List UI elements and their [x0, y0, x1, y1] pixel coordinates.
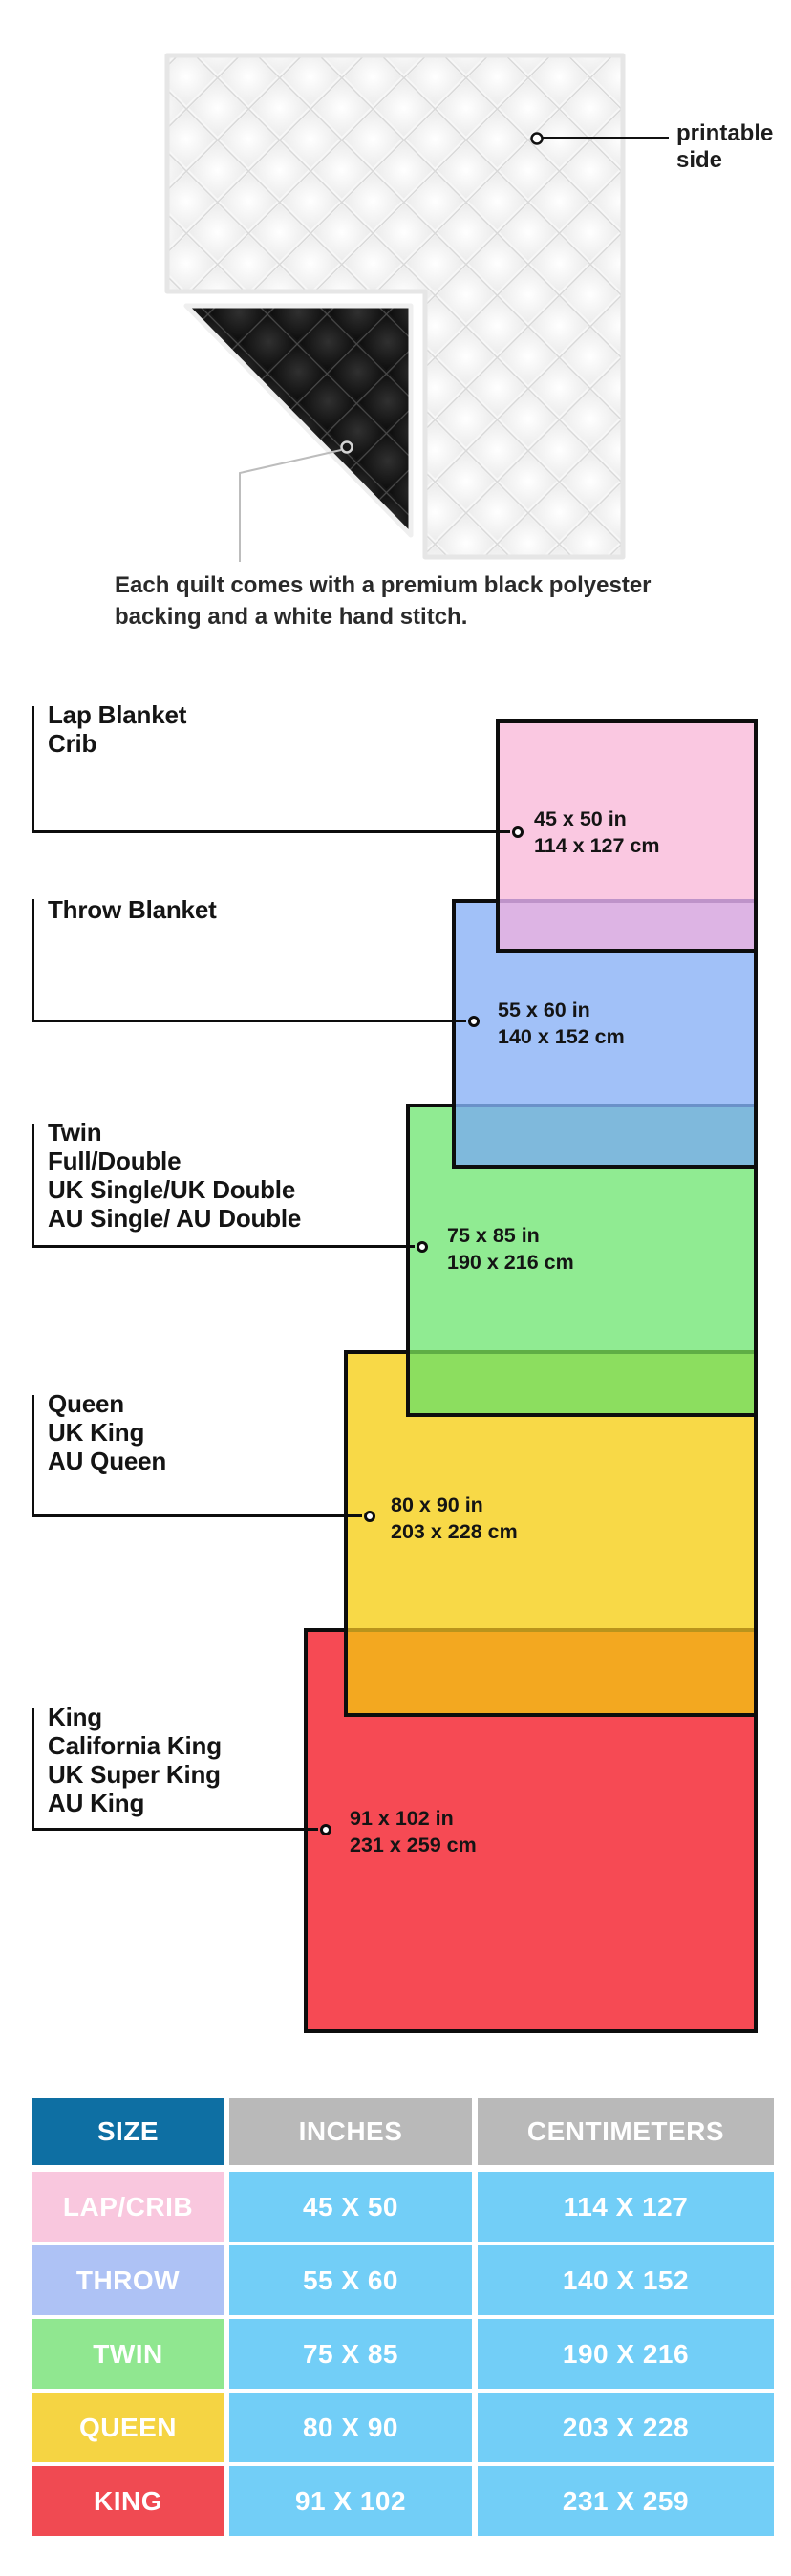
label-line: UK Super King	[48, 1760, 222, 1789]
label-line: AU Queen	[48, 1447, 166, 1475]
dims-inches: 75 x 85 in	[447, 1222, 574, 1249]
printable-side-label: printable side	[676, 120, 773, 174]
leader-vline-twin	[32, 1124, 34, 1248]
dims-twin: 75 x 85 in 190 x 216 cm	[447, 1222, 574, 1276]
label-line: Throw Blanket	[48, 895, 217, 924]
table-row-throw-size: THROW	[32, 2245, 224, 2315]
table-row-lap-cm: 114 X 127	[478, 2172, 774, 2242]
printable-side-marker-icon	[532, 134, 543, 144]
dims-cm: 190 x 216 cm	[447, 1249, 574, 1276]
leader-dot-throw	[468, 1016, 480, 1027]
leader-hline-king	[32, 1828, 318, 1831]
leader-dot-king	[320, 1824, 331, 1835]
label-line: UK Single/UK Double	[48, 1175, 301, 1204]
table-row-throw-cm: 140 X 152	[478, 2245, 774, 2315]
label-line: King	[48, 1703, 222, 1731]
dims-inches: 45 x 50 in	[534, 805, 660, 832]
leader-vline-lap	[32, 706, 34, 833]
table-row-twin-inches: 75 X 85	[229, 2319, 472, 2389]
table-row-queen-cm: 203 X 228	[478, 2393, 774, 2462]
label-king: King California King UK Super King AU Ki…	[48, 1703, 222, 1817]
label-twin: Twin Full/Double UK Single/UK Double AU …	[48, 1118, 301, 1233]
quilt-size-infographic: printable side Each quilt comes with a p…	[0, 0, 791, 2576]
dims-lap: 45 x 50 in 114 x 127 cm	[534, 805, 660, 859]
table-header-size: SIZE	[32, 2098, 224, 2165]
overlap-queen-over-king	[348, 1628, 754, 1713]
leader-hline-twin	[32, 1245, 415, 1248]
overlap-lap-over-throw	[500, 899, 754, 949]
label-lap-crib: Lap Blanket Crib	[48, 700, 186, 758]
label-line: Full/Double	[48, 1147, 301, 1175]
label-line: AU King	[48, 1789, 222, 1817]
dims-inches: 91 x 102 in	[350, 1805, 477, 1832]
table-header-centimeters: CENTIMETERS	[478, 2098, 774, 2165]
table-header-inches: INCHES	[229, 2098, 472, 2165]
table-row-throw-inches: 55 X 60	[229, 2245, 472, 2315]
dims-king: 91 x 102 in 231 x 259 cm	[350, 1805, 477, 1858]
quilt-caption-line1: Each quilt comes with a premium black po…	[115, 569, 652, 601]
table-row-king-cm: 231 X 259	[478, 2466, 774, 2536]
table-row-king-size: KING	[32, 2466, 224, 2536]
table-row-twin-cm: 190 X 216	[478, 2319, 774, 2389]
table-row-lap-inches: 45 X 50	[229, 2172, 472, 2242]
label-line: Crib	[48, 729, 186, 758]
leader-hline-queen	[32, 1514, 362, 1517]
table-row-queen-inches: 80 X 90	[229, 2393, 472, 2462]
table-row-lap-size: LAP/CRIB	[32, 2172, 224, 2242]
leader-vline-queen	[32, 1395, 34, 1517]
dims-cm: 114 x 127 cm	[534, 832, 660, 859]
dims-throw: 55 x 60 in 140 x 152 cm	[498, 997, 625, 1050]
leader-dot-twin	[417, 1241, 428, 1253]
quilt-caption-line2: backing and a white hand stitch.	[115, 601, 652, 633]
dims-inches: 80 x 90 in	[391, 1492, 518, 1518]
quilt-photo	[0, 46, 791, 581]
label-queen: Queen UK King AU Queen	[48, 1389, 166, 1475]
leader-dot-lap	[512, 826, 524, 838]
dims-queen: 80 x 90 in 203 x 228 cm	[391, 1492, 518, 1545]
dims-cm: 231 x 259 cm	[350, 1832, 477, 1858]
quilt-black-backing	[186, 306, 411, 535]
overlap-twin-over-queen	[410, 1350, 754, 1413]
table-row-king-inches: 91 X 102	[229, 2466, 472, 2536]
size-table: SIZE INCHES CENTIMETERS LAP/CRIB 45 X 50…	[32, 2098, 774, 2536]
leader-vline-throw	[32, 899, 34, 1022]
label-throw: Throw Blanket	[48, 895, 217, 924]
leader-dot-queen	[364, 1511, 375, 1522]
table-row-queen-size: QUEEN	[32, 2393, 224, 2462]
dims-cm: 203 x 228 cm	[391, 1518, 518, 1545]
leader-hline-lap	[32, 830, 510, 833]
dims-inches: 55 x 60 in	[498, 997, 625, 1023]
label-line: Twin	[48, 1118, 301, 1147]
label-line: Lap Blanket	[48, 700, 186, 729]
dims-cm: 140 x 152 cm	[498, 1023, 625, 1050]
backing-leader-line	[240, 450, 341, 562]
leader-vline-king	[32, 1708, 34, 1831]
table-row-twin-size: TWIN	[32, 2319, 224, 2389]
leader-hline-throw	[32, 1020, 466, 1022]
quilt-caption: Each quilt comes with a premium black po…	[115, 569, 652, 633]
overlap-throw-over-twin	[456, 1104, 754, 1165]
label-line: Queen	[48, 1389, 166, 1418]
label-line: California King	[48, 1731, 222, 1760]
label-line: AU Single/ AU Double	[48, 1204, 301, 1233]
label-line: UK King	[48, 1418, 166, 1447]
